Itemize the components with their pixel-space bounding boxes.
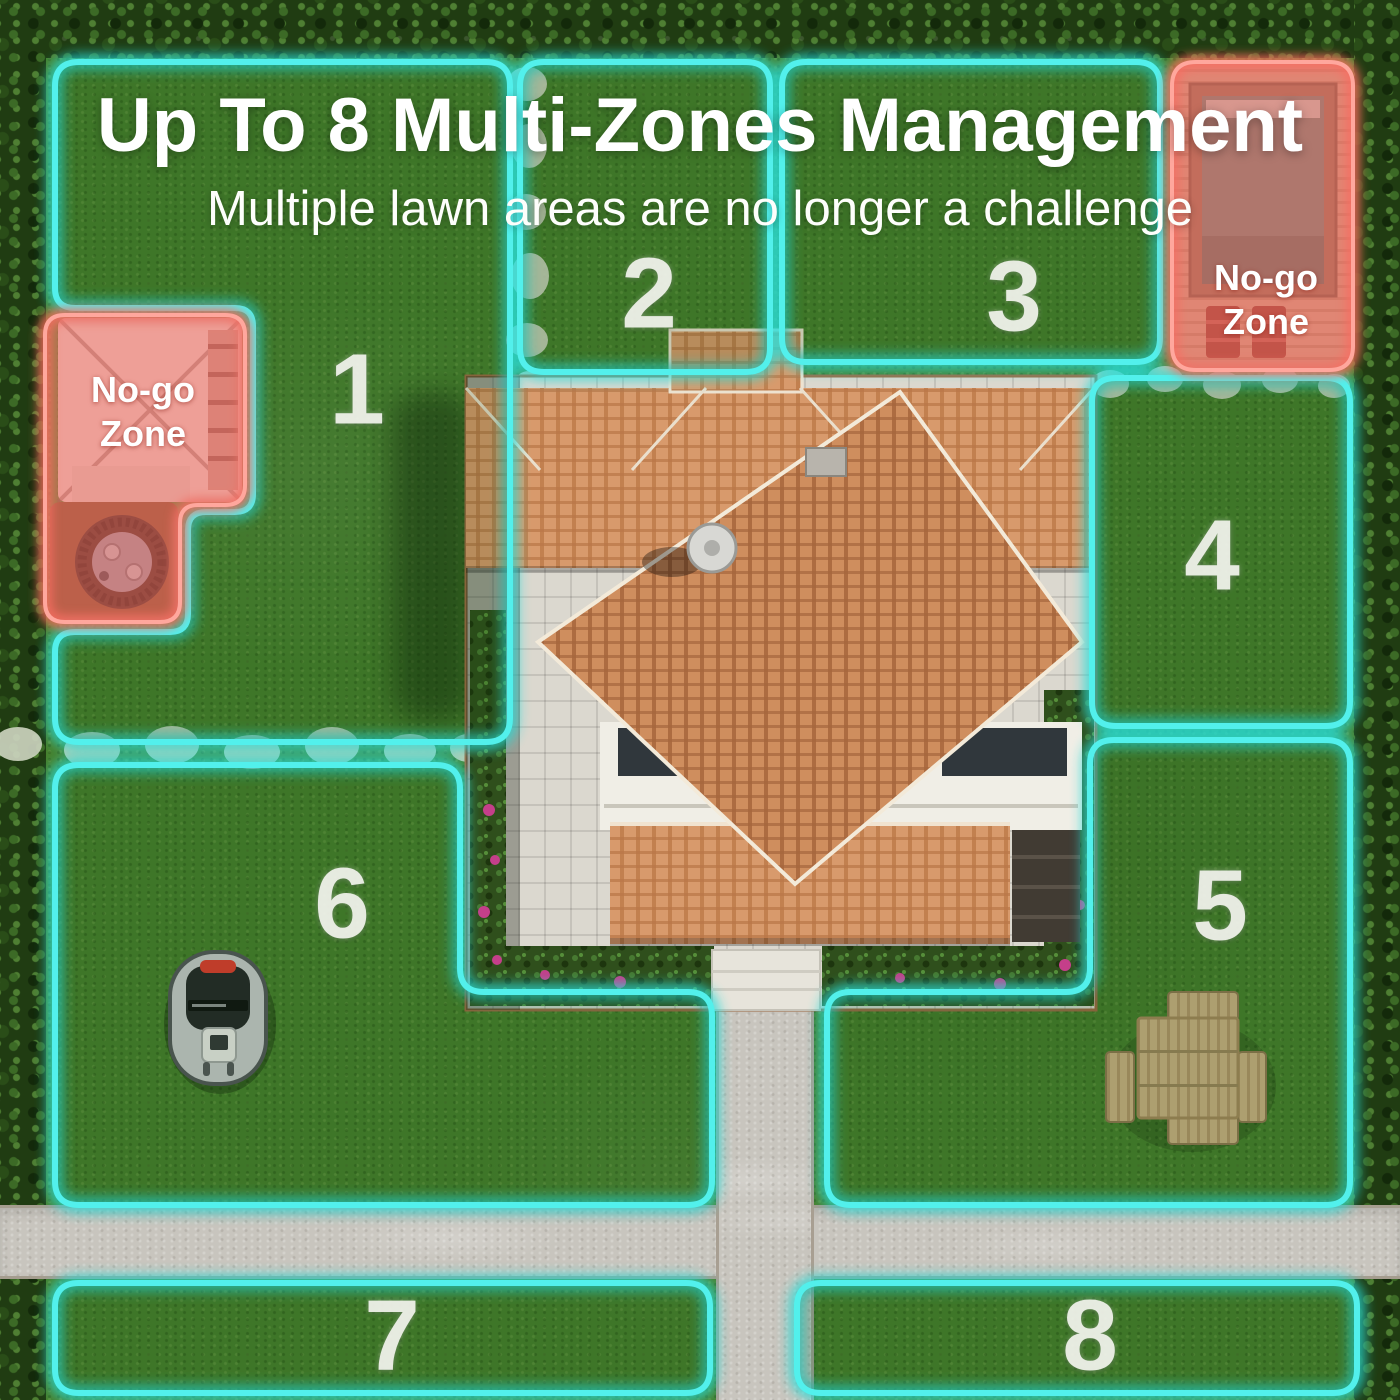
promo-image: Up To 8 Multi-Zones Management Multiple … xyxy=(0,0,1400,1400)
zone-outline-2 xyxy=(520,62,770,372)
zone-outline-7 xyxy=(55,1283,710,1393)
roof-vent xyxy=(806,448,846,476)
zone-outline-3 xyxy=(782,62,1160,362)
no-go-zone-pool xyxy=(1172,62,1353,370)
zone-outline-8 xyxy=(797,1283,1357,1393)
house xyxy=(466,330,1096,1010)
aerial-scene xyxy=(0,0,1400,1400)
zone-outline-4 xyxy=(1092,378,1350,726)
porch-steps xyxy=(712,950,820,1010)
